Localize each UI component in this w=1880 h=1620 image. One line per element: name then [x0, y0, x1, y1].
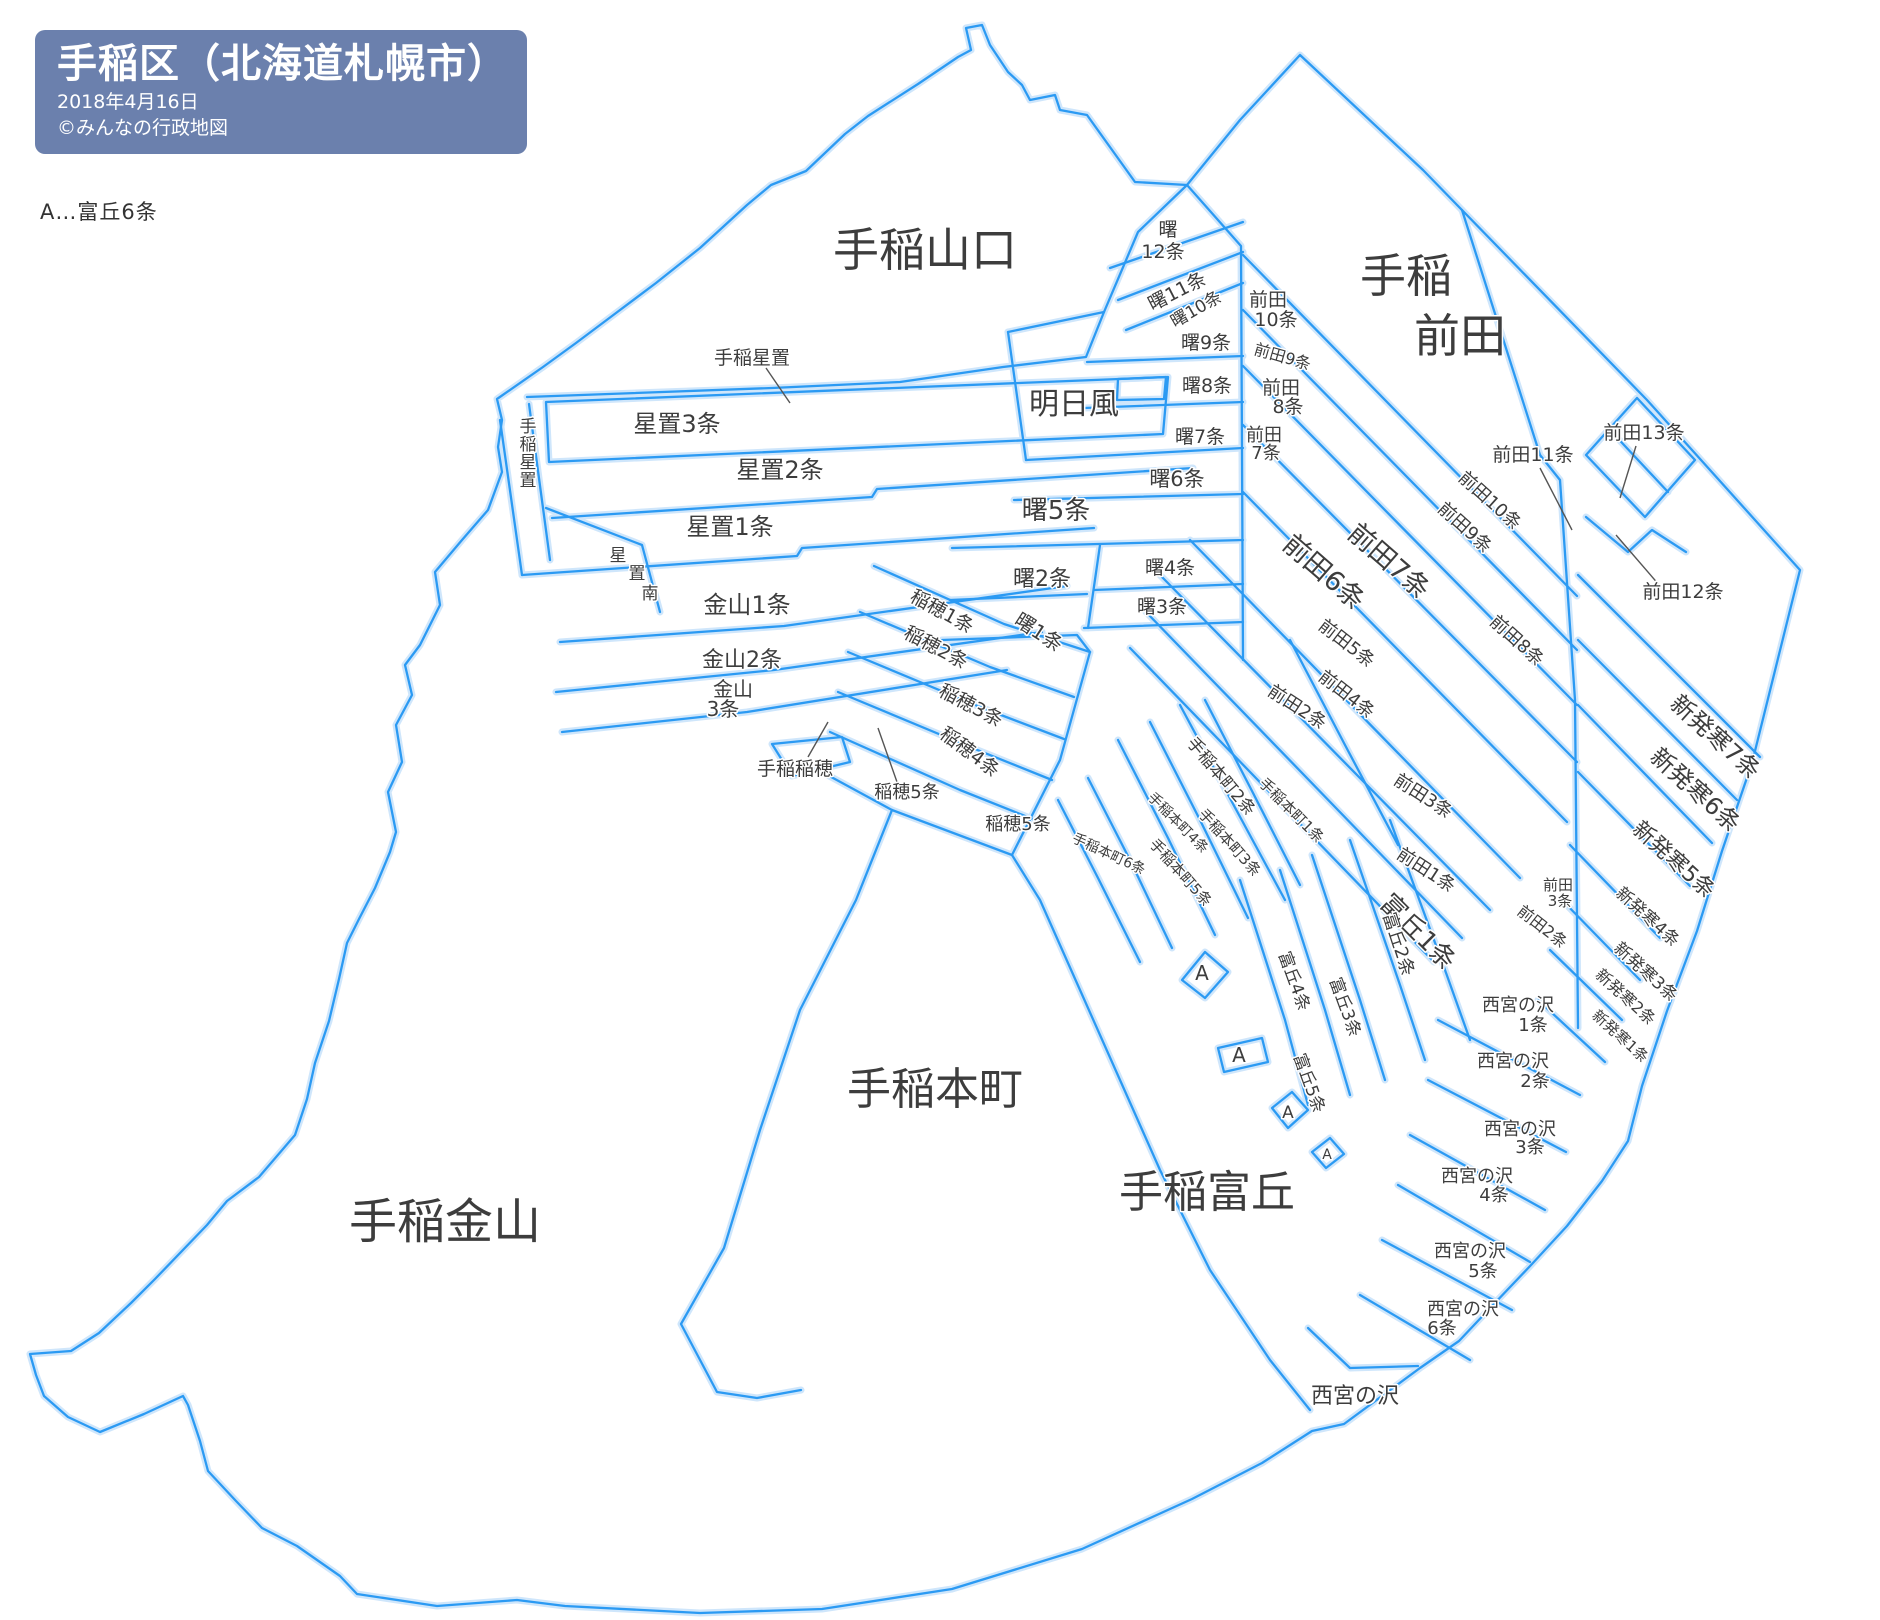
district-label-teine-kanayama: 手稲金山: [349, 1194, 541, 1250]
district-label-teine-maeda: 手稲前田: [1360, 249, 1506, 363]
district-label-teine-hoshioki-vertical: 手稲星置: [520, 417, 537, 491]
district-label-nishinomiyanosawa-1: 西宮の沢1条: [1482, 995, 1554, 1036]
district-label-teine-tomioka: 手稲富丘: [1119, 1167, 1295, 1218]
district-label-teine-inaho-callout: 手稲稲穂: [757, 758, 833, 780]
district-label-inaho-5: 稲穂5条: [985, 814, 1050, 835]
district-label-maeda-11-callout: 前田11条: [1492, 444, 1573, 466]
district-label-akebono-4: 曙4条: [1145, 557, 1195, 579]
district-label-tomioka-5: 富丘5条: [1289, 1051, 1329, 1116]
map-title-box: 手稲区（北海道札幌市） 2018年4月16日 ©みんなの行政地図: [35, 30, 527, 154]
district-label-asukaze: 明日風: [1029, 387, 1119, 422]
district-label-kanayama-1: 金山1条: [703, 591, 790, 619]
district-label-maeda-10-top: 前田10条: [1249, 289, 1298, 331]
district-label-maeda-8: 前田8条: [1485, 611, 1548, 670]
district-label-akebono-6: 曙6条: [1149, 467, 1204, 491]
district-label-teine-honcho: 手稲本町: [847, 1064, 1023, 1115]
district-label-hoshioki-1: 星置1条: [686, 513, 773, 541]
boundary-path: [560, 586, 1067, 642]
map-page: 手稲山口手稲前田明日風手稲金山手稲本町手稲富丘西宮の沢星置3条星置2条星置1条手…: [0, 0, 1880, 1620]
boundary-path: [1026, 448, 1243, 460]
boundary-path: [1312, 855, 1385, 1080]
district-label-honcho-6: 手稲本町6条: [1070, 830, 1149, 879]
district-label-teine-hoshioki-callout: 手稲星置: [714, 347, 790, 369]
district-label-akebono-1: 曙1条: [1010, 608, 1067, 657]
boundary-path: [1117, 377, 1166, 400]
district-label-maeda-3-east: 前田3条: [1543, 876, 1573, 910]
district-label-tomioka-a-1: A: [1195, 961, 1209, 985]
boundary-path: [1012, 855, 1310, 1410]
district-label-inaho-4: 稲穂4条: [935, 723, 1003, 782]
district-label-nishinomiyanosawa-4: 西宮の沢4条: [1441, 1166, 1513, 1206]
map-date: 2018年4月16日: [57, 90, 505, 116]
district-label-kanayama-2: 金山2条: [702, 648, 782, 673]
district-label-tomioka-a-3: A: [1282, 1103, 1294, 1123]
district-label-inaho-3: 稲穂3条: [935, 680, 1006, 732]
district-label-akebono-2: 曙2条: [1013, 567, 1071, 592]
district-label-maeda-9-top: 前田9条: [1252, 340, 1313, 374]
district-label-akebono-7: 曙7条: [1175, 426, 1225, 448]
map-copyright: ©みんなの行政地図: [57, 116, 505, 142]
legend-note: A…富丘6条: [40, 196, 158, 226]
district-label-nishinomiyanosawa-3: 西宮の沢3条: [1484, 1119, 1556, 1158]
district-label-akebono-9: 曙9条: [1181, 332, 1231, 354]
district-label-maeda-7-small: 前田7条: [1246, 425, 1282, 464]
district-label-hoshioki-3: 星置3条: [633, 410, 720, 438]
district-label-hoshioki-2: 星置2条: [736, 456, 823, 484]
district-label-akebono-5: 曙5条: [1022, 496, 1091, 526]
boundary-path: [1058, 800, 1140, 962]
district-label-maeda-12-callout: 前田12条: [1642, 581, 1723, 603]
district-label-nishinomiyanosawa: 西宮の沢: [1311, 1384, 1399, 1409]
district-label-maeda-13-callout: 前田13条: [1603, 422, 1684, 444]
district-label-maeda-2: 前田2条: [1264, 681, 1330, 734]
page-title: 手稲区（北海道札幌市）: [57, 40, 505, 88]
district-label-inaho-5-callout: 稲穂5条: [874, 782, 939, 803]
district-map: 手稲山口手稲前田明日風手稲金山手稲本町手稲富丘西宮の沢星置3条星置2条星置1条手…: [0, 0, 1880, 1620]
district-label-nishinomiyanosawa-2: 西宮の沢2条: [1477, 1051, 1550, 1092]
district-label-maeda-8-top: 前田8条: [1262, 377, 1304, 418]
district-label-akebono-3: 曙3条: [1137, 596, 1187, 618]
district-label-tomioka-a-4: A: [1322, 1147, 1332, 1163]
district-label-shinhassamu-5: 新発寒5条: [1627, 817, 1720, 904]
district-label-tomioka-a-2: A: [1232, 1043, 1246, 1067]
boundary-path: [1008, 312, 1104, 332]
district-label-teine-yamaguchi: 手稲山口: [833, 223, 1017, 277]
boundary-path: [1308, 1328, 1418, 1368]
district-label-akebono-8: 曙8条: [1182, 375, 1232, 397]
boundary-path: [1586, 517, 1686, 552]
